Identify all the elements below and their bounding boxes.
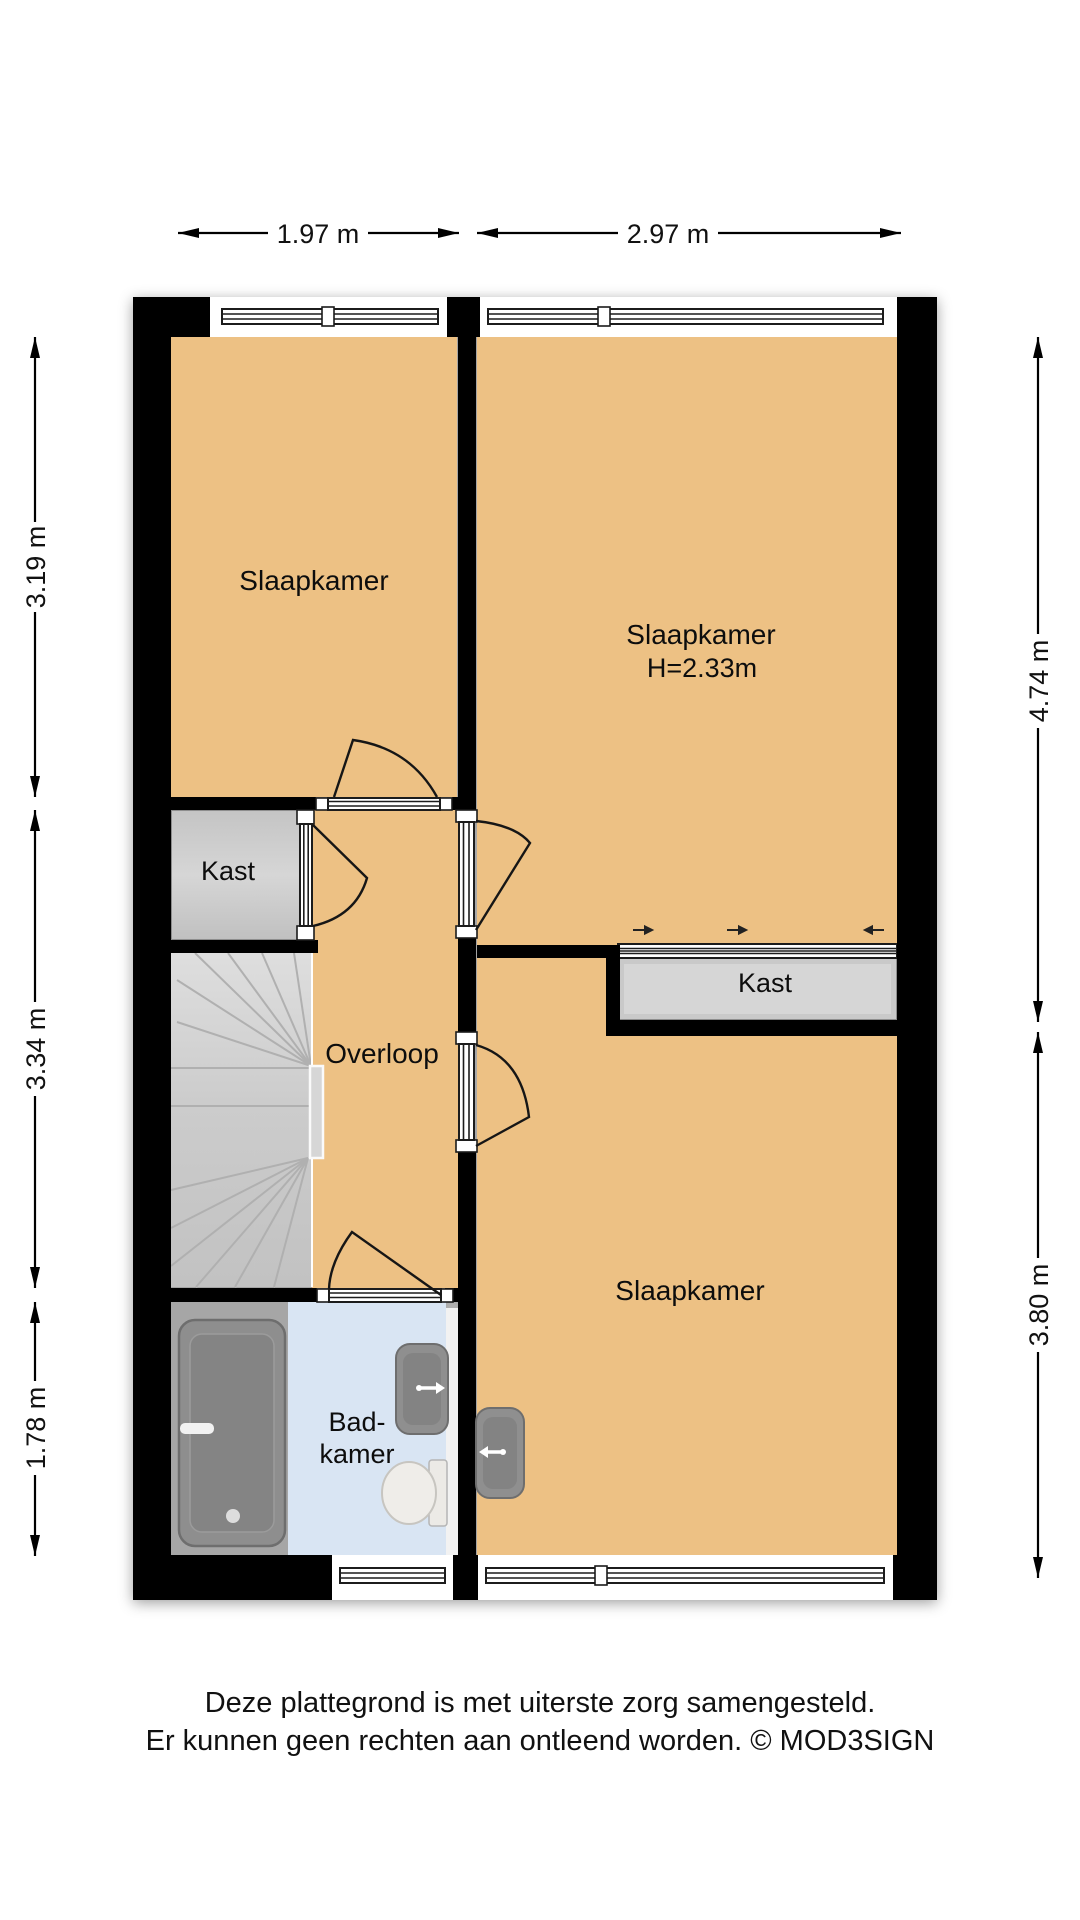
label-bedroom-top-left: Slaapkamer [239, 565, 388, 596]
label-ceiling-height: H=2.33m [647, 653, 757, 683]
dimension-top-1: 1.97 m [178, 219, 459, 249]
svg-text:4.74 m: 4.74 m [1024, 640, 1054, 723]
dimension-left-2: 3.34 m [21, 810, 51, 1288]
svg-text:3.19 m: 3.19 m [21, 526, 51, 609]
room-bedroom-bottom [477, 958, 897, 1555]
svg-text:2.97 m: 2.97 m [627, 219, 710, 249]
sink-icon [396, 1344, 448, 1434]
dimension-right-1: 4.74 m [1024, 337, 1054, 1022]
bathtub-icon [179, 1320, 285, 1546]
disclaimer-line1: Deze plattegrond is met uiterste zorg sa… [205, 1687, 876, 1719]
wall-panel [446, 1308, 458, 1555]
window-bedroom-bottom [486, 1566, 884, 1585]
label-bathroom-line1: Bad- [328, 1407, 385, 1437]
toilet-icon [382, 1460, 447, 1526]
svg-text:1.97 m: 1.97 m [277, 219, 360, 249]
svg-text:3.80 m: 3.80 m [1024, 1264, 1054, 1347]
disclaimer-line2: Er kunnen geen rechten aan ontleend word… [146, 1725, 935, 1757]
label-bedroom-bottom: Slaapkamer [615, 1275, 764, 1306]
floorplan: Slaapkamer Slaapkamer H=2.33m Slaapkamer… [133, 297, 937, 1600]
label-bedroom-top-right: Slaapkamer [626, 619, 775, 650]
label-landing: Overloop [325, 1038, 439, 1069]
floorplan-canvas: Slaapkamer Slaapkamer H=2.33m Slaapkamer… [0, 0, 1080, 1920]
washbasin-icon [476, 1408, 524, 1498]
label-bathroom-line2: kamer [319, 1439, 394, 1469]
label-closet-left: Kast [201, 856, 256, 886]
stair-handrail [310, 1066, 323, 1158]
window-bathroom [340, 1568, 445, 1583]
label-closet-right: Kast [738, 968, 793, 998]
dimension-left-1: 3.19 m [21, 337, 51, 797]
dimension-left-3: 1.78 m [21, 1302, 51, 1556]
svg-text:1.78 m: 1.78 m [21, 1387, 51, 1470]
stairs [171, 953, 323, 1287]
window-bedroom-top-right [488, 307, 883, 326]
page: { "plan": { "colors": { "wall": "#000000… [0, 0, 1080, 1920]
dimension-right-2: 3.80 m [1024, 1032, 1054, 1578]
window-bedroom-top-left [222, 307, 438, 326]
dimension-top-2: 2.97 m [477, 219, 901, 249]
svg-text:3.34 m: 3.34 m [21, 1008, 51, 1091]
